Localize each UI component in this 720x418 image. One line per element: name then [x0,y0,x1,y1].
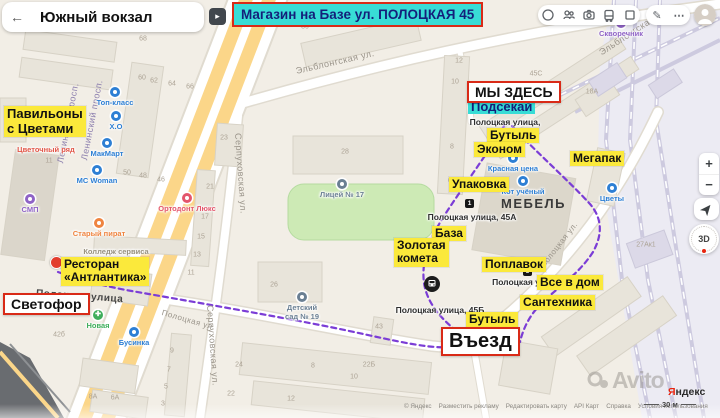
bus-stop-icon[interactable] [424,276,440,297]
building-number: 12 [455,58,463,65]
more-ellipsis-icon[interactable]: ⋯ [670,6,688,24]
building-number: 6А [111,395,120,402]
zoom-out-button[interactable]: − [699,175,719,196]
map-poi-icon[interactable] [25,194,35,204]
building-number: 11 [45,158,52,165]
attribution-link[interactable]: Разместить рекламу [439,403,499,410]
building-number: 22 [227,391,235,398]
building-number: 5 [164,384,168,391]
map-note-label: Упаковка [449,177,509,192]
route-circle-icon[interactable] [539,6,557,24]
building-number: 23 [220,135,228,142]
map-poi-icon[interactable] [102,138,112,148]
building-number: 8 [311,363,315,370]
map-poi-label[interactable]: Бусинка [119,339,150,348]
map-poi-label[interactable]: Детскийсад № 19 [285,304,319,321]
address-label: Полоцкая улица, 45А [428,212,517,222]
building-number: 21 [206,184,214,191]
scale-line [644,404,659,405]
map-note-label: Павильоныс Цветами [4,106,86,137]
map-poi-label[interactable]: Лицей № 17 [320,191,364,200]
avatar-person-icon [694,4,716,26]
map-poi-label[interactable]: Новая [86,322,109,331]
building-number: 43 [375,324,383,331]
building-number: 11 [187,270,194,277]
compass-3d-button[interactable]: 3D [689,224,719,254]
transit-stop-icon[interactable]: 1 [465,199,474,208]
transit-bus-icon[interactable] [600,6,618,24]
user-avatar[interactable] [694,4,716,26]
building-number: 10 [451,79,459,86]
map-poi-icon[interactable] [518,176,528,186]
attribution-link[interactable]: Справка [606,403,631,410]
map-note-label: Эконом [474,142,525,157]
building-number: 64 [168,81,176,88]
map-poi-icon[interactable] [182,193,192,203]
traffic-icon[interactable] [560,6,578,24]
street-name-label: Серпуховская ул. [233,133,249,215]
building-number: 22Б [363,362,375,369]
building-number: 48 [139,173,147,180]
svetofor-label: Светофор [3,293,90,315]
building-number: 62 [150,78,158,85]
map-note-label: Ресторан«Антлантика» [61,257,149,286]
map-poi-label[interactable]: Ортодонт Люкс [158,205,216,214]
map-poi-icon[interactable]: ✚ [93,310,103,320]
building-number: 10 [350,374,358,381]
map-poi-icon[interactable] [129,327,139,337]
map-note-label: Мегапак [570,151,624,166]
map-poi-icon[interactable] [337,179,347,189]
zoom-in-button[interactable]: + [699,153,719,175]
edit-tools-pill: ✎ ⋯ [646,5,690,25]
page-title: Южный вокзал [40,9,152,26]
address-label: Полоцкая у [492,277,540,287]
map-poi-label[interactable]: Старый пират [73,230,126,239]
building-number: 7 [167,367,171,374]
expand-button[interactable]: ▸ [209,8,226,25]
building-number: 17 [201,214,209,221]
street-name-label: Серпуховская ул. [205,305,221,387]
layers-icon[interactable] [621,6,639,24]
building-number: 13 [193,252,201,259]
zoom-controls: + − [699,153,719,195]
street-name-label: Эльблонгская ул. [295,48,376,76]
attribution-link[interactable]: Редактировать карту [506,403,567,410]
map-screenshot: Ленинский просп.Ленинский просп.Серпухов… [0,0,720,418]
compass-3d-label: 3D [698,234,710,244]
map-note-label: Золотаякомета [394,238,449,267]
map-poi-label[interactable]: Колледж сервиса [83,248,148,257]
map-poi-label[interactable]: МС Woman [77,177,118,186]
map-poi-icon[interactable] [607,183,617,193]
scale-bar: 30 м [644,400,696,409]
back-button[interactable]: ← [2,9,32,25]
map-poi-icon[interactable] [297,292,307,302]
location-arrow-icon [699,201,715,217]
map-note-label: Бутыль [466,312,518,327]
building-number: 26 [270,282,278,289]
panorama-camera-icon[interactable] [580,6,598,24]
map-poi-label[interactable]: Скворечник [599,30,643,39]
building-number: 60 [138,75,146,82]
label-layer: Ленинский просп.Ленинский просп.Серпухов… [0,0,720,418]
avito-watermark: Avito [586,367,664,394]
map-note-label: Все в дом [537,275,603,290]
map-poi-label[interactable]: Х.О [110,123,123,132]
map-poi-label[interactable]: Цветочный ряд [17,146,75,155]
map-poi-label[interactable]: Цветы [600,195,624,204]
map-poi-icon[interactable] [94,218,104,228]
building-number: 42б [53,332,65,339]
building-number: 45С [530,71,543,78]
building-number: 27Ак1 [636,242,655,249]
building-number: 8 [450,144,454,151]
scale-label: 30 м [662,400,678,409]
entrance-label: Въезд [441,327,520,356]
map-poi-label[interactable]: Топ-класс [97,99,134,108]
map-tools-pill [538,5,640,25]
district-label: МЕБЕЛЬ [501,196,566,211]
shop-banner: Магазин на Базе ул. ПОЛОЦКАЯ 45 [232,2,483,27]
map-poi-label[interactable]: СМП [22,206,39,215]
avito-logo-icon [586,369,610,393]
attribution-link[interactable]: API Карт [574,403,599,410]
map-poi-label[interactable]: МакМарт [91,150,124,159]
building-number: 9 [170,348,174,355]
building-number: 46 [157,177,165,184]
building-number: 12 [287,396,295,403]
my-location-button[interactable] [694,198,719,220]
map-poi-label[interactable]: Красная цена [488,165,538,174]
building-number: 50 [123,170,131,177]
yandex-logo[interactable]: Яндекс [668,386,705,398]
scale-line [681,404,696,405]
building-number: 68 [139,36,147,43]
map-note-label: Сантехника [520,295,595,310]
attribution-link[interactable]: © Яндекс [404,403,432,410]
edit-pencil-icon[interactable]: ✎ [648,6,666,24]
building-number: 18А [586,89,598,96]
building-number: 28 [341,149,349,156]
map-poi-icon[interactable] [110,87,120,97]
map-note-label: Поплавок [482,257,546,272]
map-poi-icon[interactable] [111,111,121,121]
we-are-here-label: МЫ ЗДЕСЬ [467,81,561,103]
building-number: 15 [197,234,205,241]
building-number: 66 [186,84,194,91]
building-number: 24 [235,362,243,369]
building-number: 8А [89,394,98,401]
search-card: ← Южный вокзал [2,2,204,32]
map-poi-icon[interactable] [92,165,102,175]
